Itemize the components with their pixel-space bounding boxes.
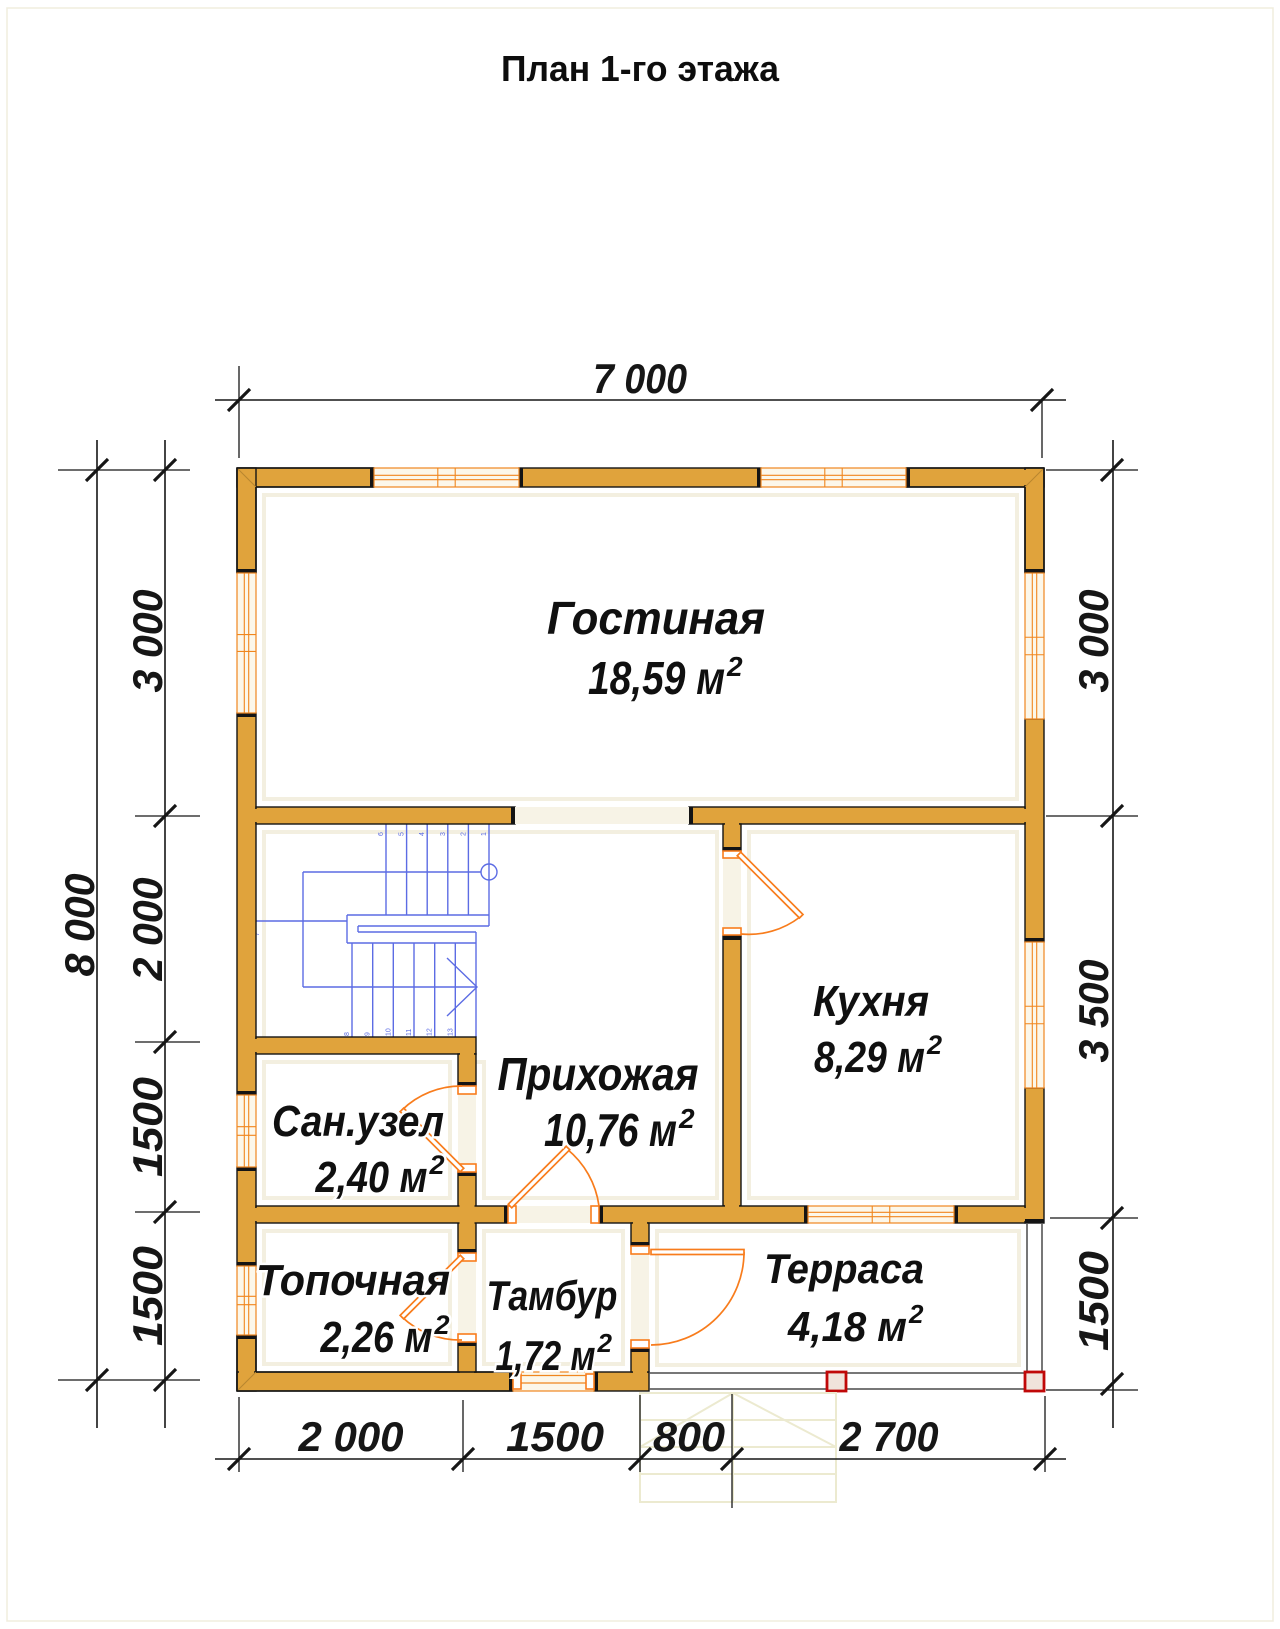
svg-text:9: 9 [365,1032,372,1036]
svg-text:1500: 1500 [124,1246,171,1346]
svg-text:2: 2 [926,1030,942,1060]
svg-text:Топочная: Топочная [256,1256,450,1305]
svg-text:2,26 м: 2,26 м [320,1313,433,1362]
svg-text:1500: 1500 [124,1077,171,1177]
svg-text:2: 2 [726,651,743,682]
svg-text:Гостиная: Гостиная [547,592,765,644]
svg-text:800: 800 [653,1413,725,1460]
svg-text:10,76 м: 10,76 м [544,1104,677,1156]
svg-text:План 1-го этажа: План 1-го этажа [501,48,780,89]
svg-text:8: 8 [344,1032,351,1036]
svg-text:4: 4 [419,832,426,836]
svg-text:Прихожая: Прихожая [498,1048,699,1100]
svg-text:13: 13 [447,1028,454,1036]
svg-text:Тамбур: Тамбур [487,1272,618,1319]
svg-text:3 500: 3 500 [1070,960,1117,1063]
svg-text:8,29 м: 8,29 м [814,1033,925,1082]
svg-text:2 000: 2 000 [298,1413,404,1460]
svg-text:2 700: 2 700 [839,1413,939,1460]
svg-text:6: 6 [378,832,385,836]
svg-text:4,18 м: 4,18 м [787,1303,907,1350]
svg-text:3: 3 [440,832,447,836]
svg-text:1: 1 [481,832,488,836]
svg-text:7 000: 7 000 [593,355,687,402]
svg-text:3 000: 3 000 [1070,590,1117,693]
svg-text:2: 2 [429,1150,445,1180]
svg-text:12: 12 [427,1028,434,1036]
svg-text:1500: 1500 [1070,1251,1117,1351]
svg-text:2 000: 2 000 [124,878,171,982]
svg-text:1,72 м: 1,72 м [496,1332,596,1379]
svg-text:2,40 м: 2,40 м [315,1153,428,1202]
svg-text:Терраса: Терраса [764,1245,924,1292]
svg-text:3 000: 3 000 [124,590,171,693]
svg-text:10: 10 [385,1028,392,1036]
svg-text:5: 5 [399,832,406,836]
svg-text:1500: 1500 [506,1413,604,1460]
svg-text:2: 2 [597,1328,613,1358]
svg-text:2: 2 [434,1310,450,1340]
svg-text:18,59 м: 18,59 м [588,652,725,704]
svg-text:Сан.узел: Сан.узел [272,1097,444,1146]
svg-text:11: 11 [406,1029,413,1036]
svg-text:Кухня: Кухня [813,977,929,1026]
svg-text:2: 2 [908,1299,924,1329]
svg-text:8 000: 8 000 [56,874,103,977]
svg-text:2: 2 [460,832,467,836]
svg-text:2: 2 [678,1103,695,1134]
